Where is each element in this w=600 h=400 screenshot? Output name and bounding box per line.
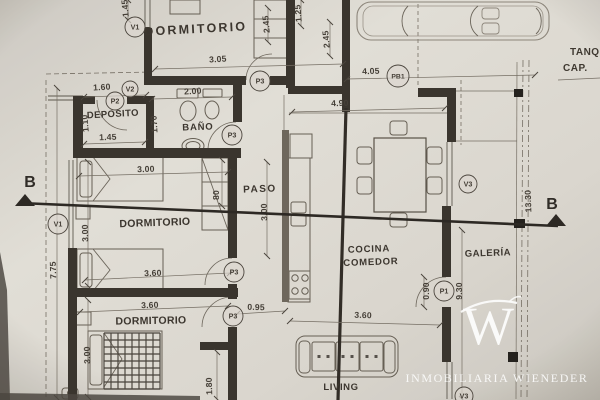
- vignette: [0, 0, 600, 400]
- floorplan-photo: DORMITORIODEPOSITOBAÑOPASODORMITORIODORM…: [0, 0, 600, 400]
- floor-plan-drawing: DORMITORIODEPOSITOBAÑOPASODORMITORIODORM…: [0, 0, 600, 400]
